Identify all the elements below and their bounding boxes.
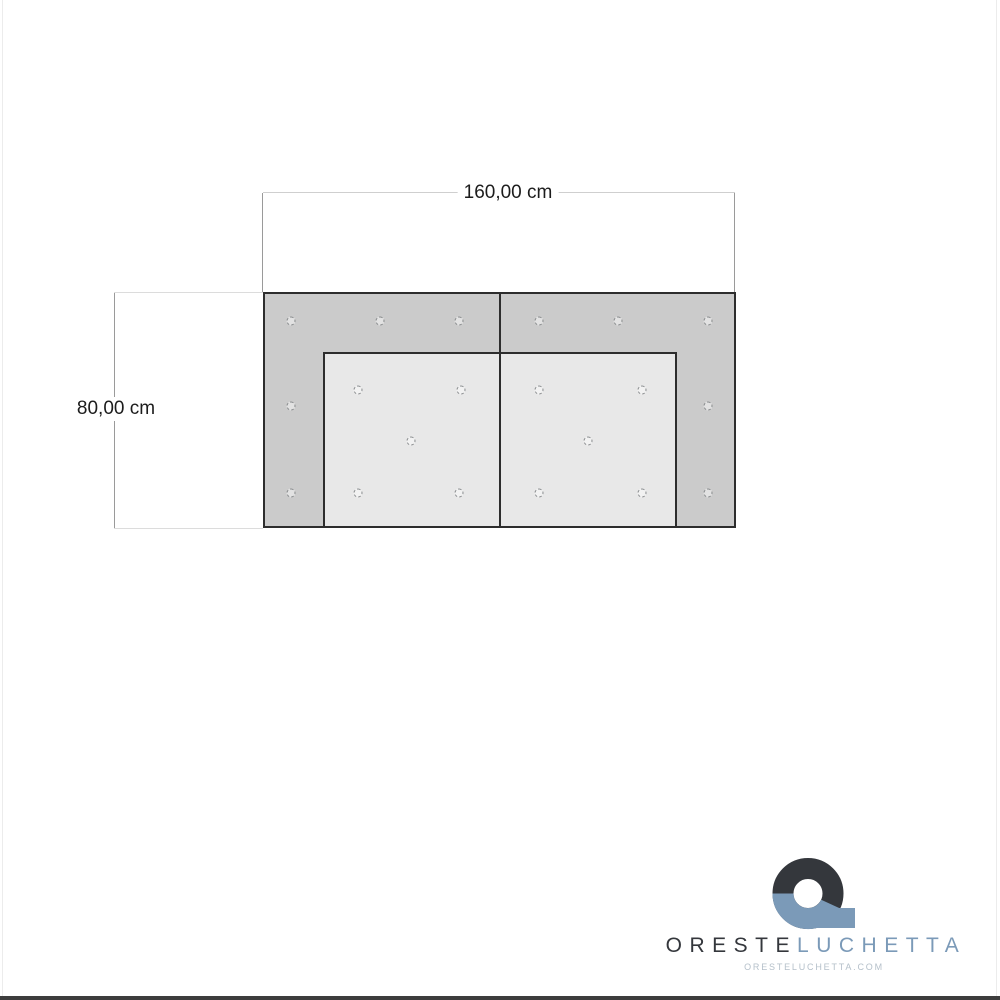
brand-wordmark: ORESTELUCHETTA xyxy=(666,934,967,958)
mounting-hole xyxy=(704,489,713,498)
mounting-hole xyxy=(704,317,713,326)
height-dimension-label: 80,00 cm xyxy=(71,397,161,421)
height-extension-line-bottom xyxy=(114,528,263,529)
headboard-center-seam xyxy=(499,292,501,528)
mounting-hole xyxy=(287,402,296,411)
mounting-hole xyxy=(535,489,544,498)
mounting-hole xyxy=(457,386,466,395)
mounting-hole xyxy=(638,386,647,395)
mounting-hole xyxy=(704,402,713,411)
brand-website: ORESTELUCHETTA.COM xyxy=(744,962,884,972)
mounting-hole xyxy=(376,317,385,326)
page-right-border xyxy=(996,0,997,1000)
mounting-hole xyxy=(584,437,593,446)
mounting-hole xyxy=(407,437,416,446)
mounting-hole xyxy=(535,317,544,326)
mounting-hole xyxy=(287,489,296,498)
width-dimension-label: 160,00 cm xyxy=(458,181,559,205)
brand-logo-icon xyxy=(763,855,863,935)
mounting-hole xyxy=(354,386,363,395)
mounting-hole xyxy=(638,489,647,498)
page-left-border xyxy=(2,0,3,1000)
brand-name-primary: ORESTE xyxy=(666,934,797,957)
width-extension-line-right xyxy=(734,193,735,292)
brand-name-secondary: LUCHETTA xyxy=(797,934,966,957)
logo-tail xyxy=(808,908,855,928)
width-extension-line-left xyxy=(262,193,263,292)
mounting-hole xyxy=(287,317,296,326)
mounting-hole xyxy=(614,317,623,326)
mounting-hole xyxy=(455,317,464,326)
mounting-hole xyxy=(354,489,363,498)
height-extension-line-top xyxy=(114,292,263,293)
mounting-hole xyxy=(535,386,544,395)
page-bottom-rule xyxy=(0,996,1000,1000)
mounting-hole xyxy=(455,489,464,498)
